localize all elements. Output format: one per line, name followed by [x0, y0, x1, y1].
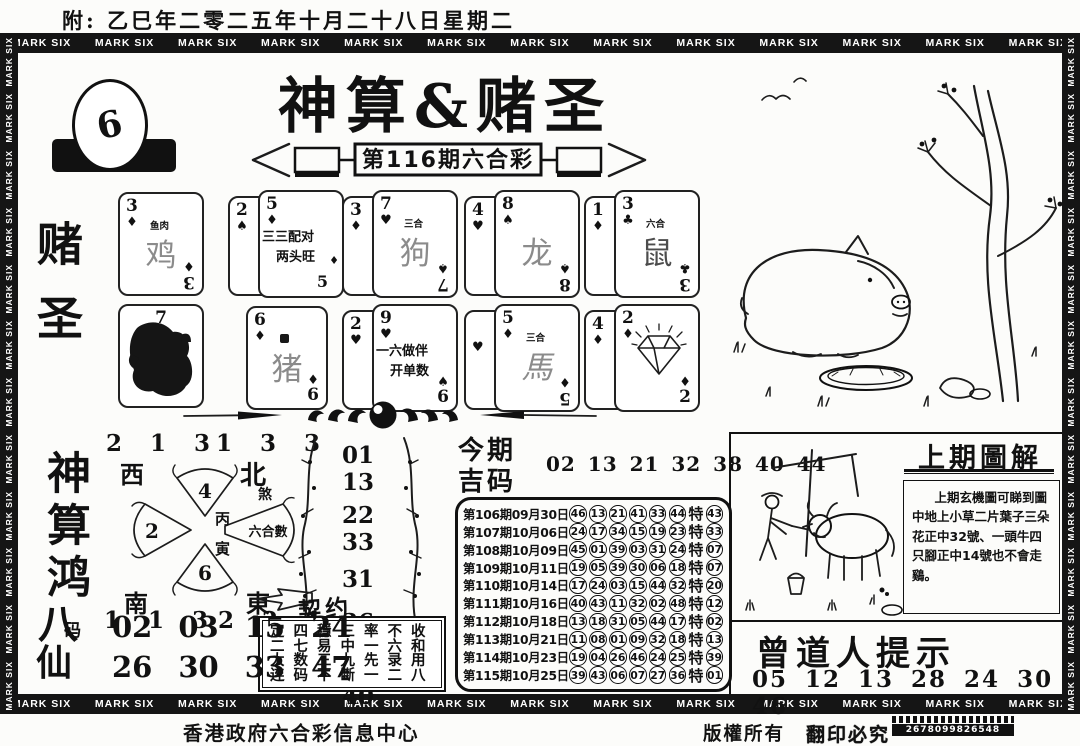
result-row: 第111期10月16日 40 43 11 32 02 48 特 12 — [463, 595, 724, 613]
right-arrow-icon — [238, 412, 282, 420]
divider-line — [729, 432, 1062, 434]
special-number-ball: 07 — [706, 559, 724, 577]
footer-no-reprint: 翻印必究 — [806, 720, 890, 746]
bama-number: 15 — [245, 610, 285, 644]
footer-copyright: 版權所有 — [703, 720, 785, 746]
number-ball: 24 — [649, 648, 667, 666]
draw-label: 第107期10月06日 — [463, 523, 567, 541]
footer-publisher: 香港政府六合彩信息中心 — [183, 717, 420, 746]
barcode-icon — [892, 716, 1014, 723]
number-ball: 24 — [569, 523, 587, 541]
card-rank: 4 — [472, 202, 484, 219]
card-rank: 4 — [592, 316, 604, 333]
card-corner: 3 ♦ — [126, 198, 138, 229]
diamond-suit-icon: ♦ — [559, 375, 571, 388]
verse-line: 一六做伴 — [376, 342, 456, 362]
number-ball: 43 — [589, 595, 607, 613]
bama-number: 03 — [178, 610, 218, 644]
draw-label: 第115期10月25日 — [463, 666, 567, 684]
divider-line — [729, 432, 731, 694]
ink-blot — [123, 314, 199, 404]
blade-top-number: 4 — [198, 479, 212, 503]
compass-center-bottom: 寅 — [215, 540, 230, 558]
left-arrow-icon — [480, 411, 524, 419]
bama-char-3: 仙 — [36, 634, 72, 686]
special-number-ball: 20 — [706, 577, 724, 595]
number-ball: 18 — [669, 559, 687, 577]
number-ball: 07 — [629, 666, 647, 684]
card-front: 5♦ 三三配对 两头旺 ♦ 5 — [258, 190, 344, 298]
number-ball: 03 — [629, 541, 647, 559]
number-ball: 06 — [609, 666, 627, 684]
wave-divider — [180, 398, 600, 434]
date-note: 附: 乙巳年二零二五年十月二十八日星期二 — [62, 5, 515, 35]
number-ball: 32 — [669, 577, 687, 595]
master-tips-numbers: 05 12 13 28 24 30 46 — [752, 666, 1080, 720]
lucky-title: 今期 吉码 — [458, 436, 516, 498]
last-issue-body: 上期玄機圖可睇到圖中地上小草二片葉子三朵花正中32號、一頭牛四只腳正中14號也不… — [903, 480, 1060, 614]
number-ball: 05 — [629, 613, 647, 631]
number-ball: 30 — [629, 559, 647, 577]
card-rooster: 3 ♦ 鱼肉 鸡 3 ♦ — [118, 192, 204, 296]
diamond-suit-icon: ♦ — [183, 259, 195, 272]
compass-center-top: 丙 — [215, 510, 230, 528]
diamond-suit-icon: ♦ — [502, 328, 514, 341]
number-ball: 23 — [669, 523, 687, 541]
number-ball: 08 — [589, 631, 607, 649]
club-suit-icon: ♣ — [679, 261, 691, 274]
result-row: 第109期10月11日 19 05 39 30 06 18 特 07 — [463, 559, 724, 577]
spade-suit-icon: ♠ — [236, 220, 248, 233]
heart-suit-icon: ♥ — [350, 334, 362, 347]
number-ball: 44 — [649, 577, 667, 595]
number-ball: 01 — [589, 541, 607, 559]
number-ball: 17 — [669, 613, 687, 631]
draw-label: 第110期10月14日 — [463, 576, 567, 594]
number-ball: 15 — [629, 577, 647, 595]
footer-code-block: 2678099826548 — [892, 716, 1014, 736]
blade-left-number: 2 — [145, 519, 159, 543]
spade-suit-icon: ♠ — [559, 261, 571, 274]
special-number-ball: 13 — [706, 631, 724, 649]
number-ball: 33 — [649, 505, 667, 523]
card-rank: 8 — [559, 275, 571, 292]
card-rank: 2 — [236, 202, 248, 219]
lucky-title-line2: 吉码 — [458, 467, 516, 498]
heart-suit-icon: ♥ — [380, 328, 392, 341]
special-number-ball: 07 — [706, 541, 724, 559]
card-front: 2♦ ♦2 — [614, 304, 700, 412]
diamond-suit-icon: ♦ — [126, 216, 138, 229]
special-number-ball: 02 — [706, 613, 724, 631]
result-row: 第112期10月18日 13 18 31 05 44 17 特 02 — [463, 613, 724, 631]
card-rank: 5 — [502, 310, 514, 327]
card-rank: 3 — [183, 273, 195, 290]
card-pig: 6♦ 猪 ♦6 — [246, 306, 328, 410]
card-rank: 8 — [502, 196, 514, 213]
number-ball: 39 — [609, 541, 627, 559]
number-ball: 27 — [649, 666, 667, 684]
bama-number: 24 — [311, 610, 351, 644]
bama-number: 26 — [112, 650, 152, 684]
number-ball: 32 — [649, 631, 667, 649]
number-ball: 02 — [649, 595, 667, 613]
pig-tree-illustration — [698, 56, 1064, 408]
card-front: 9♥ 一六做伴 开单数 ♠6 — [372, 304, 458, 412]
mark-six-banner-top: MARK SIXMARK SIXMARK SIXMARK SIXMARK SIX… — [0, 33, 1080, 53]
diamond-suit-icon: ♦ — [592, 334, 604, 347]
card-pair-2-5: 2♠ 5♦ 三三配对 两头旺 ♦ 5 — [228, 190, 346, 300]
card-inkblot: 7 — [118, 304, 204, 408]
bama-number: 02 — [112, 610, 152, 644]
card-rank: 1 — [592, 202, 604, 219]
card-corner-bottom: 3 ♦ — [183, 259, 195, 290]
heart-suit-icon: ♥ — [380, 214, 392, 227]
special-prefix: 特 — [688, 665, 703, 686]
blade-bottom-number: 6 — [198, 561, 212, 585]
special-number-ball: 01 — [706, 666, 724, 684]
results-table: 第106期09月30日 46 13 21 41 33 44 特 43 第107期… — [455, 497, 732, 692]
issue-label: 第116期六合彩 — [355, 142, 541, 174]
number-ball: 09 — [629, 631, 647, 649]
result-row: 第106期09月30日 46 13 21 41 33 44 特 43 — [463, 505, 724, 523]
number-ball: 11 — [609, 595, 627, 613]
number-ball: 39 — [609, 559, 627, 577]
wave-ball-icon — [370, 402, 397, 429]
number-ball: 48 — [669, 595, 687, 613]
seal-title: 神算鸿 — [32, 450, 96, 606]
club-suit-icon: ♣ — [622, 214, 634, 227]
number-ball: 19 — [649, 523, 667, 541]
side-title: 赌圣 — [24, 220, 90, 368]
number-ball: 19 — [569, 648, 587, 666]
special-number-ball: 43 — [706, 505, 724, 523]
title-underline — [904, 469, 1054, 474]
bama-numbers-row2: 26303347 — [112, 650, 351, 684]
card-rank: 7 — [380, 196, 392, 213]
number-ball: 19 — [569, 559, 587, 577]
card-rank: 9 — [380, 310, 392, 327]
draw-label: 第109期10月11日 — [463, 559, 567, 577]
spade-suit-icon: ♠ — [502, 214, 514, 227]
card-rank: 3 — [126, 198, 138, 215]
number-ball: 18 — [589, 613, 607, 631]
number-ball: 03 — [609, 577, 627, 595]
number-ball: 17 — [589, 523, 607, 541]
card-rank: 2 — [679, 389, 691, 406]
special-number-ball: 33 — [706, 523, 724, 541]
draw-label: 第106期09月30日 — [463, 505, 567, 523]
heart-suit-icon: ♥ — [472, 220, 484, 233]
card-rank: 3 — [679, 275, 691, 292]
diamond-suit-icon: ♦ — [329, 254, 339, 267]
mark-six-banner-right: MARK SIXMARK SIXMARK SIXMARK SIXMARK SIX… — [1062, 33, 1080, 714]
mark-six-banner-left: MARK SIXMARK SIXMARK SIXMARK SIXMARK SIX… — [0, 33, 18, 714]
card-front: 5♦ 三合 馬 5♦ — [494, 304, 580, 412]
draw-label: 第112期10月18日 — [463, 612, 567, 630]
result-row: 第114期10月23日 19 04 26 46 24 25 特 39 — [463, 648, 724, 666]
number-ball: 01 — [609, 631, 627, 649]
number-ball: 45 — [569, 541, 587, 559]
plum-number-row: 22 33 — [322, 502, 394, 556]
card-front: 7♥ 三合 狗 7♠ — [372, 190, 458, 298]
result-row: 第115期10月25日 39 43 06 07 27 36 特 01 — [463, 666, 724, 684]
number-ball: 24 — [589, 577, 607, 595]
lucky-title-line1: 今期 — [458, 436, 516, 467]
number-ball: 15 — [629, 523, 647, 541]
card-rank: 3 — [622, 196, 634, 213]
diamond-suit-icon: ♦ — [254, 330, 266, 343]
lottery-tipsheet-page: 附: 乙巳年二零二五年十月二十八日星期二 MARK SIXMARK SIXMAR… — [0, 0, 1080, 746]
number-ball: 04 — [589, 648, 607, 666]
card-rank: 5 — [317, 272, 328, 291]
number-ball: 06 — [649, 559, 667, 577]
number-ball: 32 — [629, 595, 647, 613]
plum-number-row: 01 13 — [322, 442, 394, 496]
draw-label: 第114期10月23日 — [463, 648, 567, 666]
plum-branch-right — [398, 436, 424, 626]
card-dog: 3♦ 7♥ 三合 狗 7♠ — [342, 190, 460, 300]
card-front: 8♠ 龙 8♠ — [494, 190, 580, 298]
number-ball: 05 — [589, 559, 607, 577]
footer-code-number: 2678099826548 — [892, 724, 1014, 736]
number-ball: 13 — [589, 505, 607, 523]
diamond-suit-icon: ♦ — [266, 214, 278, 227]
number-ball: 46 — [569, 505, 587, 523]
egg-logo: 6 — [72, 79, 148, 171]
bama-number: 33 — [245, 650, 285, 684]
card-diamond-gem: 4♦ 2♦ ♦2 — [584, 304, 702, 414]
card-rank: 2 — [350, 316, 362, 333]
farmer-ox-illustration — [734, 438, 906, 618]
number-ball: 11 — [569, 631, 587, 649]
number-ball: 21 — [609, 505, 627, 523]
result-row: 第113期10月21日 11 08 01 09 32 18 特 13 — [463, 630, 724, 648]
special-number-ball: 39 — [706, 648, 724, 666]
number-ball: 13 — [569, 613, 587, 631]
special-number-ball: 12 — [706, 595, 724, 613]
number-ball: 34 — [609, 523, 627, 541]
number-ball: 40 — [569, 595, 587, 613]
bama-number: 30 — [178, 650, 218, 684]
number-ball: 31 — [609, 613, 627, 631]
number-ball: 17 — [569, 577, 587, 595]
divider-line — [729, 620, 1062, 622]
egg-logo-number: 6 — [93, 102, 126, 148]
number-ball: 44 — [649, 613, 667, 631]
card-dragon: 4♥ 8♠ 龙 8♠ — [464, 190, 582, 300]
number-ball: 43 — [589, 666, 607, 684]
result-row: 第110期10月14日 17 24 03 15 44 32 特 20 — [463, 577, 724, 595]
blade-right-label: 六合數 — [248, 524, 287, 540]
number-ball: 18 — [669, 631, 687, 649]
number-ball: 25 — [669, 648, 687, 666]
page-title: 神算&赌圣 — [225, 58, 665, 145]
number-ball: 26 — [609, 648, 627, 666]
bama-numbers-row1: 02031524 — [112, 610, 351, 644]
card-rank: 5 — [266, 196, 278, 213]
draw-label: 第113期10月21日 — [463, 630, 567, 648]
card-rank: 6 — [254, 312, 266, 329]
card-rank: 7 — [437, 275, 449, 292]
number-ball: 31 — [649, 541, 667, 559]
result-row: 第107期10月06日 24 17 34 15 19 23 特 33 — [463, 523, 724, 541]
result-row: 第108期10月09日 45 01 39 03 31 24 特 07 — [463, 541, 724, 559]
spade-suit-icon: ♠ — [437, 261, 449, 274]
card-rank: 3 — [350, 202, 362, 219]
number-ball: 24 — [669, 541, 687, 559]
heart-suit-icon: ♥ — [472, 341, 484, 354]
card-rat: 1♦ 3♣ 六合 鼠 3♣ — [584, 190, 702, 300]
number-ball: 36 — [669, 666, 687, 684]
number-ball: 39 — [569, 666, 587, 684]
verse-line: 三三配对 — [262, 228, 342, 248]
number-ball: 41 — [629, 505, 647, 523]
draw-label: 第108期10月09日 — [463, 541, 567, 559]
number-ball: 46 — [629, 648, 647, 666]
card-front: 3♣ 六合 鼠 3♣ — [614, 190, 700, 298]
draw-label: 第111期10月16日 — [463, 594, 567, 612]
diamond-suit-icon: ♦ — [592, 220, 604, 233]
number-ball: 44 — [669, 505, 687, 523]
diamond-suit-icon: ♦ — [350, 220, 362, 233]
bama-number: 47 — [311, 650, 351, 684]
smudge-mark — [280, 334, 289, 343]
